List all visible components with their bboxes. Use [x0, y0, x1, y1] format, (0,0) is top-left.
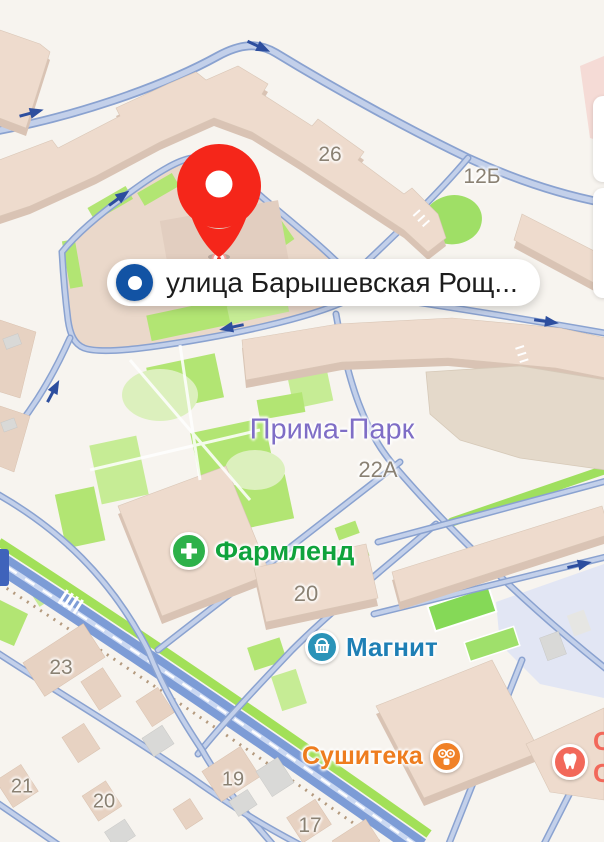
pin-inner-dot	[206, 171, 233, 198]
poi-farmland-label: Фармленд	[215, 536, 354, 567]
poi-sushiteka-label: Сушитека	[302, 742, 423, 771]
poi-dentist[interactable]	[552, 744, 588, 780]
poi-magnit-label: Магнит	[346, 632, 438, 663]
district-label-prima-park: Прима-Парк	[250, 414, 415, 447]
building-number-20-center: 20	[294, 581, 318, 607]
tooth-icon	[552, 744, 588, 780]
plus-icon	[170, 532, 208, 570]
building-number-23: 23	[49, 656, 72, 680]
poi-sushiteka[interactable]: Сушитека	[302, 740, 463, 773]
edge-cut-label-1: С	[593, 726, 604, 757]
building-number-20-bottom: 20	[93, 791, 115, 814]
poi-magnit[interactable]: Магнит	[305, 630, 438, 664]
road-shield-badge	[0, 549, 9, 586]
building-number-19: 19	[222, 769, 244, 792]
edge-cut-label-2: С	[593, 758, 604, 789]
poi-farmland[interactable]: Фармленд	[170, 532, 354, 570]
sushi-icon	[430, 740, 463, 773]
search-result-pill[interactable]: улица Барышевская Рощ...	[107, 259, 540, 306]
building-number-26: 26	[318, 143, 341, 167]
right-edge-card	[593, 96, 604, 182]
basket-icon	[305, 630, 339, 664]
building-number-22a: 22А	[358, 457, 397, 483]
building-number-12b: 12Б	[463, 165, 500, 189]
building-number-21: 21	[11, 776, 33, 799]
map-viewport: 26 12Б 22А 20 23 21 20 19 17 Прима-Парк …	[0, 0, 604, 842]
search-result-text: улица Барышевская Рощ...	[166, 267, 518, 299]
location-dot-icon	[116, 264, 153, 301]
right-edge-card	[593, 188, 604, 298]
building-number-17: 17	[298, 814, 321, 838]
